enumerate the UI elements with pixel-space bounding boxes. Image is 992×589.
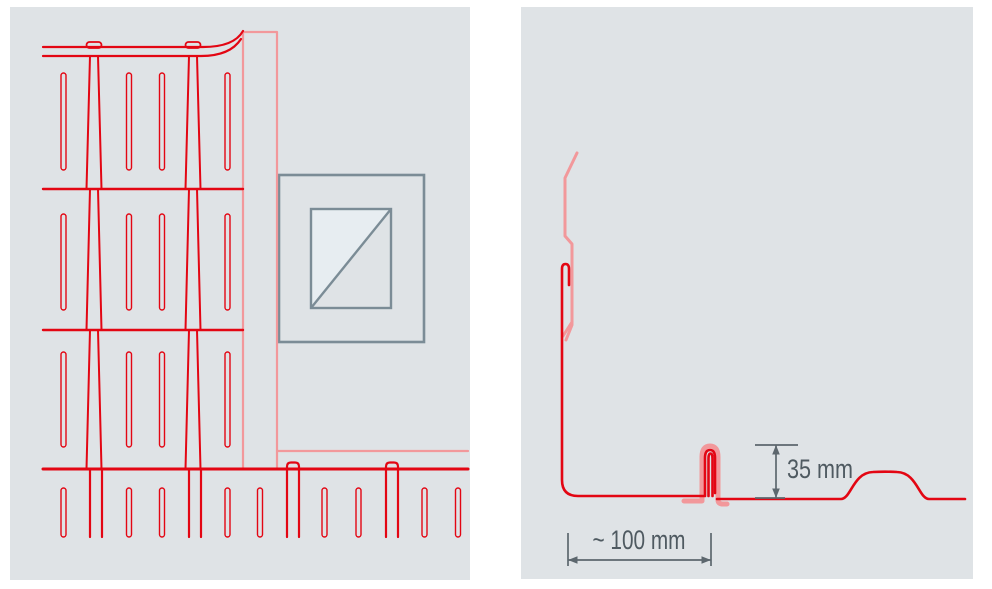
- panel-background: [10, 7, 470, 580]
- panel-background: [521, 7, 973, 579]
- flashing-width-label: ~ 100 mm: [593, 525, 686, 555]
- seam-height-label: 35 mm: [787, 454, 853, 484]
- facade-elevation-drawing: [10, 7, 470, 580]
- page: 35 mm ~ 100 mm: [0, 0, 992, 589]
- flashing-section-panel: 35 mm ~ 100 mm: [521, 7, 973, 579]
- flashing-section-drawing: 35 mm ~ 100 mm: [521, 7, 973, 579]
- facade-elevation-panel: [10, 7, 470, 580]
